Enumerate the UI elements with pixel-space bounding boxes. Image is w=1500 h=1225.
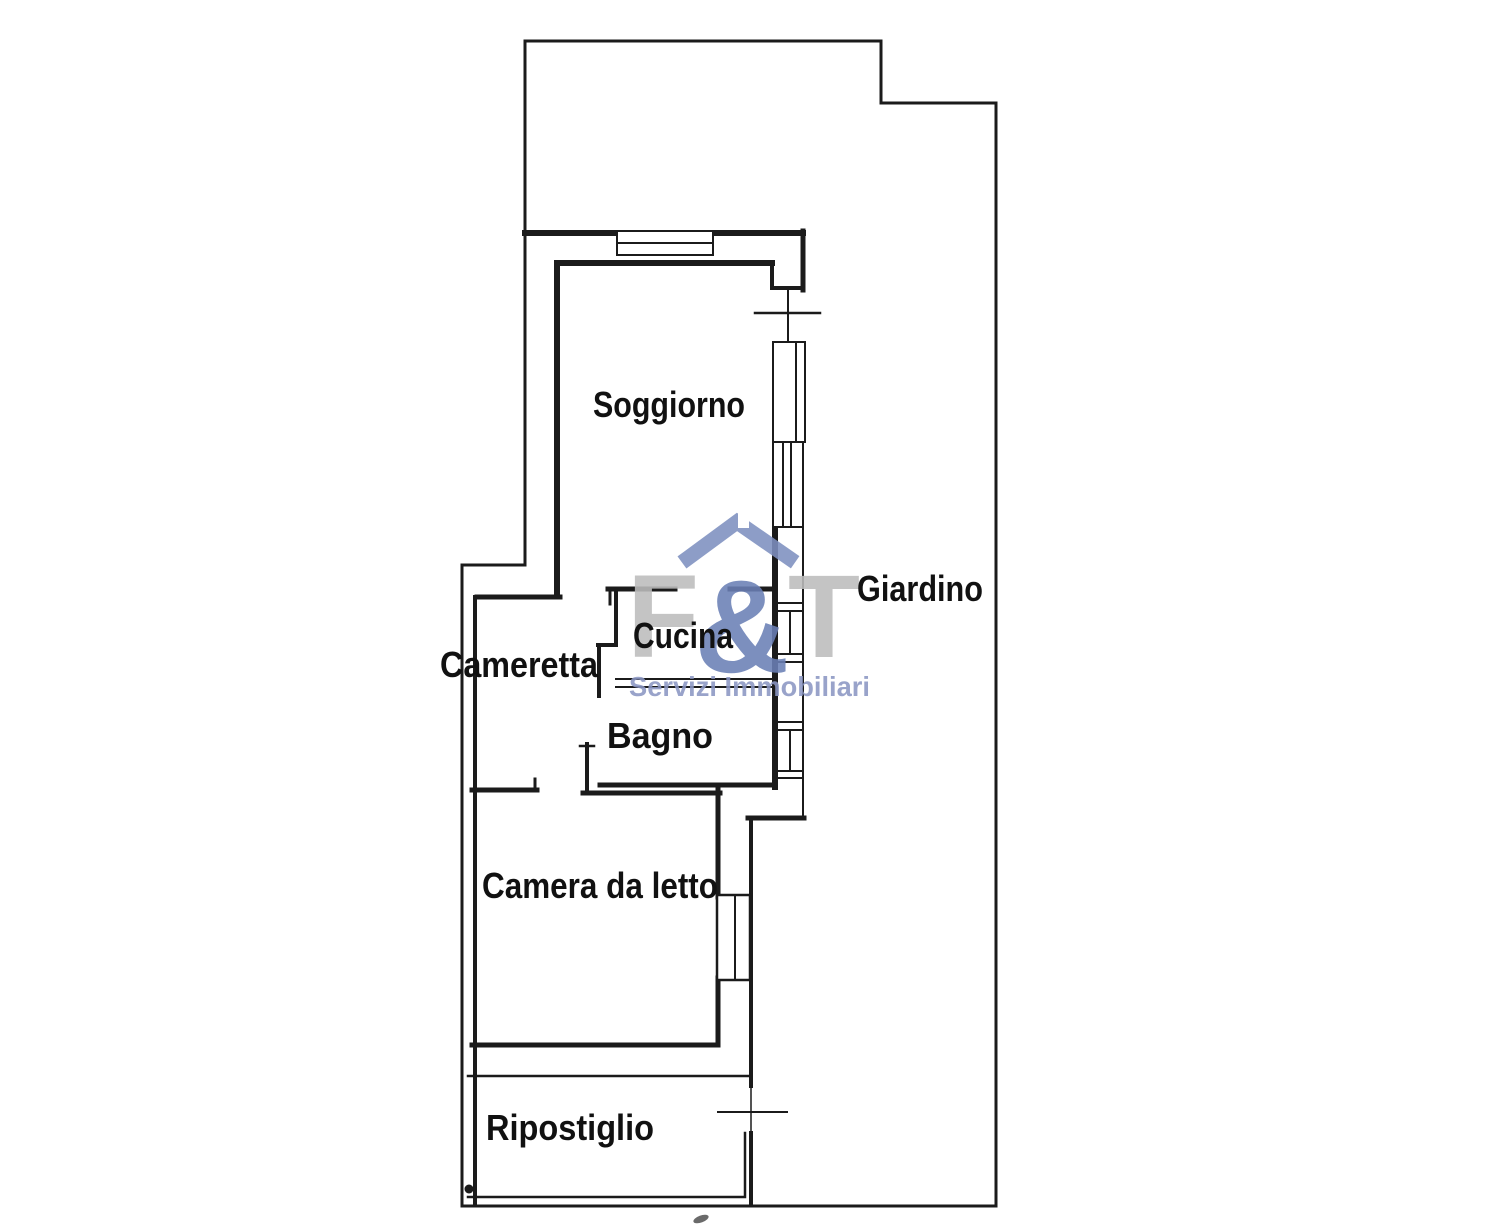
agency-watermark: F T & Servizi Immobiliari xyxy=(627,512,870,702)
floor-plan-svg: F T & Servizi Immobiliari Soggiorno Giar… xyxy=(0,0,1500,1225)
room-labels: Soggiorno Giardino Cucina Cameretta Bagn… xyxy=(440,384,983,1148)
scan-ink-blob xyxy=(465,1185,474,1194)
garden-window-b xyxy=(773,442,803,527)
bedroom-window xyxy=(717,895,750,980)
room-label-giardino: Giardino xyxy=(857,568,983,609)
room-label-cameretta: Cameretta xyxy=(440,644,599,685)
room-label-cucina: Cucina xyxy=(633,615,734,656)
room-label-bagno: Bagno xyxy=(607,715,713,756)
soggiorno-walls xyxy=(525,233,803,787)
scan-smudge xyxy=(692,1213,709,1225)
watermark-tagline: Servizi Immobiliari xyxy=(629,671,870,702)
room-label-camera-da-letto: Camera da letto xyxy=(482,865,718,906)
watermark-letter-t: T xyxy=(788,551,860,683)
floor-plan-page: F T & Servizi Immobiliari Soggiorno Giar… xyxy=(0,0,1500,1225)
garden-window-a xyxy=(773,342,805,442)
roof-chimney-notch xyxy=(738,512,749,528)
room-label-soggiorno: Soggiorno xyxy=(593,384,745,425)
room-label-ripostiglio: Ripostiglio xyxy=(486,1107,654,1148)
